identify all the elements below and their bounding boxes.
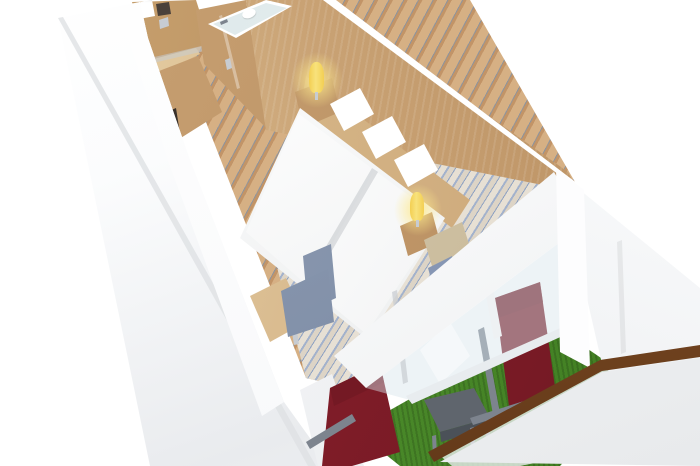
lamp-right — [410, 192, 424, 221]
cabin-render — [0, 0, 700, 466]
lamp-right-base — [416, 220, 419, 227]
lamp-left — [309, 62, 324, 93]
lamp-left-base — [315, 92, 318, 100]
